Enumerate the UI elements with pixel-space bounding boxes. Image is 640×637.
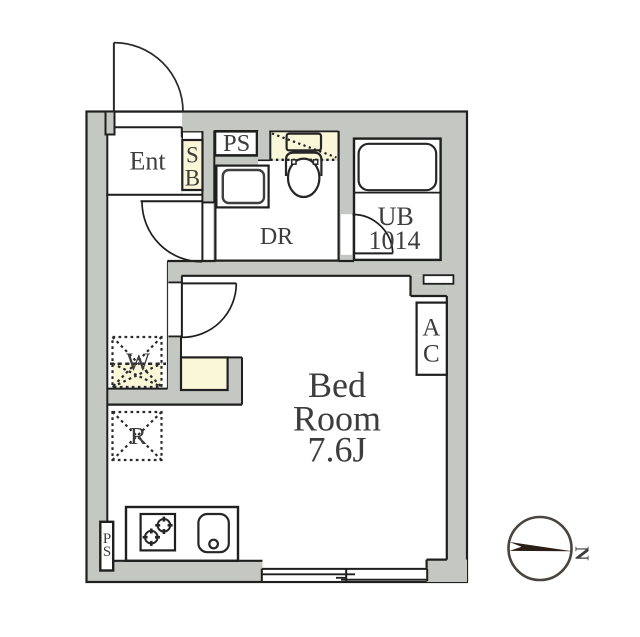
svg-text:S: S (103, 544, 111, 560)
svg-text:7.6J: 7.6J (307, 430, 366, 470)
svg-text:B: B (185, 166, 200, 191)
svg-text:R: R (130, 423, 147, 450)
svg-text:S: S (186, 143, 199, 168)
svg-text:A: A (422, 315, 440, 342)
svg-text:N: N (570, 546, 592, 561)
svg-text:PS: PS (223, 130, 250, 157)
svg-text:1014: 1014 (369, 226, 421, 255)
svg-text:W: W (126, 347, 151, 376)
svg-text:C: C (423, 341, 440, 368)
svg-text:DR: DR (260, 224, 293, 250)
svg-text:Ent: Ent (129, 147, 166, 176)
